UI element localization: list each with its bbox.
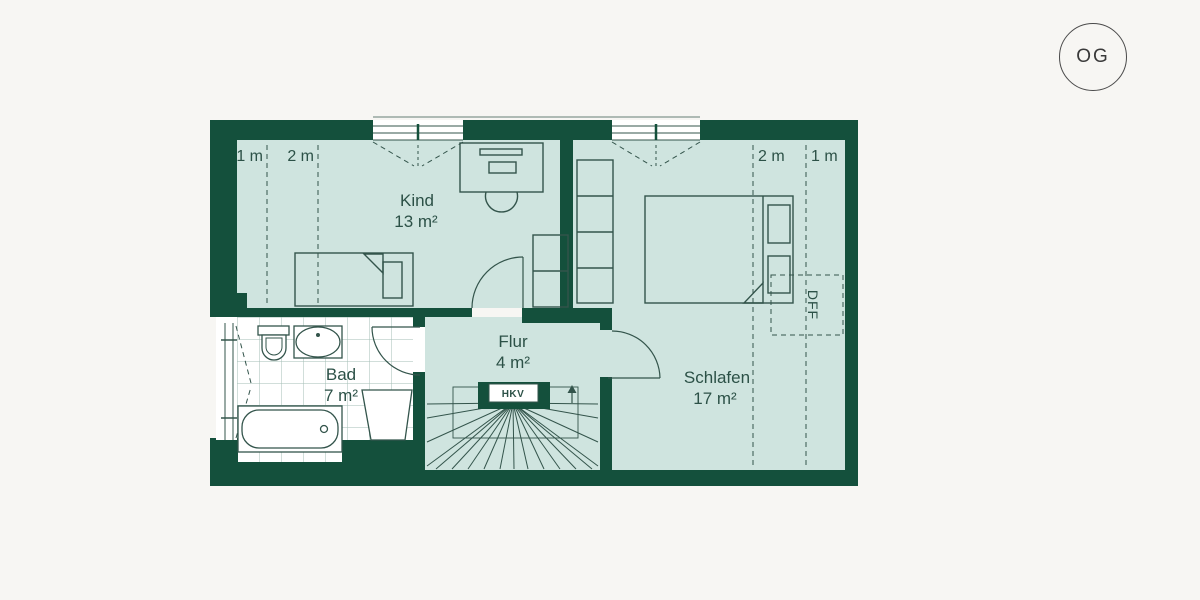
hkv-unit: HKV bbox=[478, 382, 550, 409]
measure-label-2m-left: 2 m bbox=[287, 148, 314, 165]
door-gap-bad-flur bbox=[413, 327, 425, 372]
room-label-flur: Flur bbox=[498, 332, 528, 351]
room-area-flur: 4 m² bbox=[496, 353, 530, 372]
room-schlafen-floor-upper bbox=[573, 140, 845, 330]
floor-badge-label: OG bbox=[1076, 46, 1110, 68]
hkv-label: HKV bbox=[502, 389, 525, 400]
floor-badge: OG bbox=[1059, 23, 1127, 91]
door-gap-flur-schlafen bbox=[600, 330, 612, 377]
room-label-bad: Bad bbox=[326, 365, 356, 384]
shower-tray-icon bbox=[362, 390, 412, 440]
measure-label-1m-left: 1 m bbox=[236, 148, 263, 165]
bathtub-icon bbox=[238, 406, 342, 452]
measure-label-2m-right: 2 m bbox=[758, 148, 785, 165]
room-area-bad: 7 m² bbox=[324, 386, 358, 405]
room-label-kind: Kind bbox=[400, 191, 434, 210]
dff-label: DFF bbox=[805, 290, 821, 320]
floorplan-drawing: HKV 1 m 2 m 2 m 1 m Kind 13 m² Schlafen … bbox=[0, 0, 1200, 600]
floorplan-canvas: HKV 1 m 2 m 2 m 1 m Kind 13 m² Schlafen … bbox=[0, 0, 1200, 600]
room-area-schlafen: 17 m² bbox=[693, 389, 737, 408]
measure-label-1m-right: 1 m bbox=[811, 148, 838, 165]
room-label-schlafen: Schlafen bbox=[684, 368, 750, 387]
sink-icon bbox=[294, 326, 342, 358]
room-area-kind: 13 m² bbox=[394, 212, 438, 231]
